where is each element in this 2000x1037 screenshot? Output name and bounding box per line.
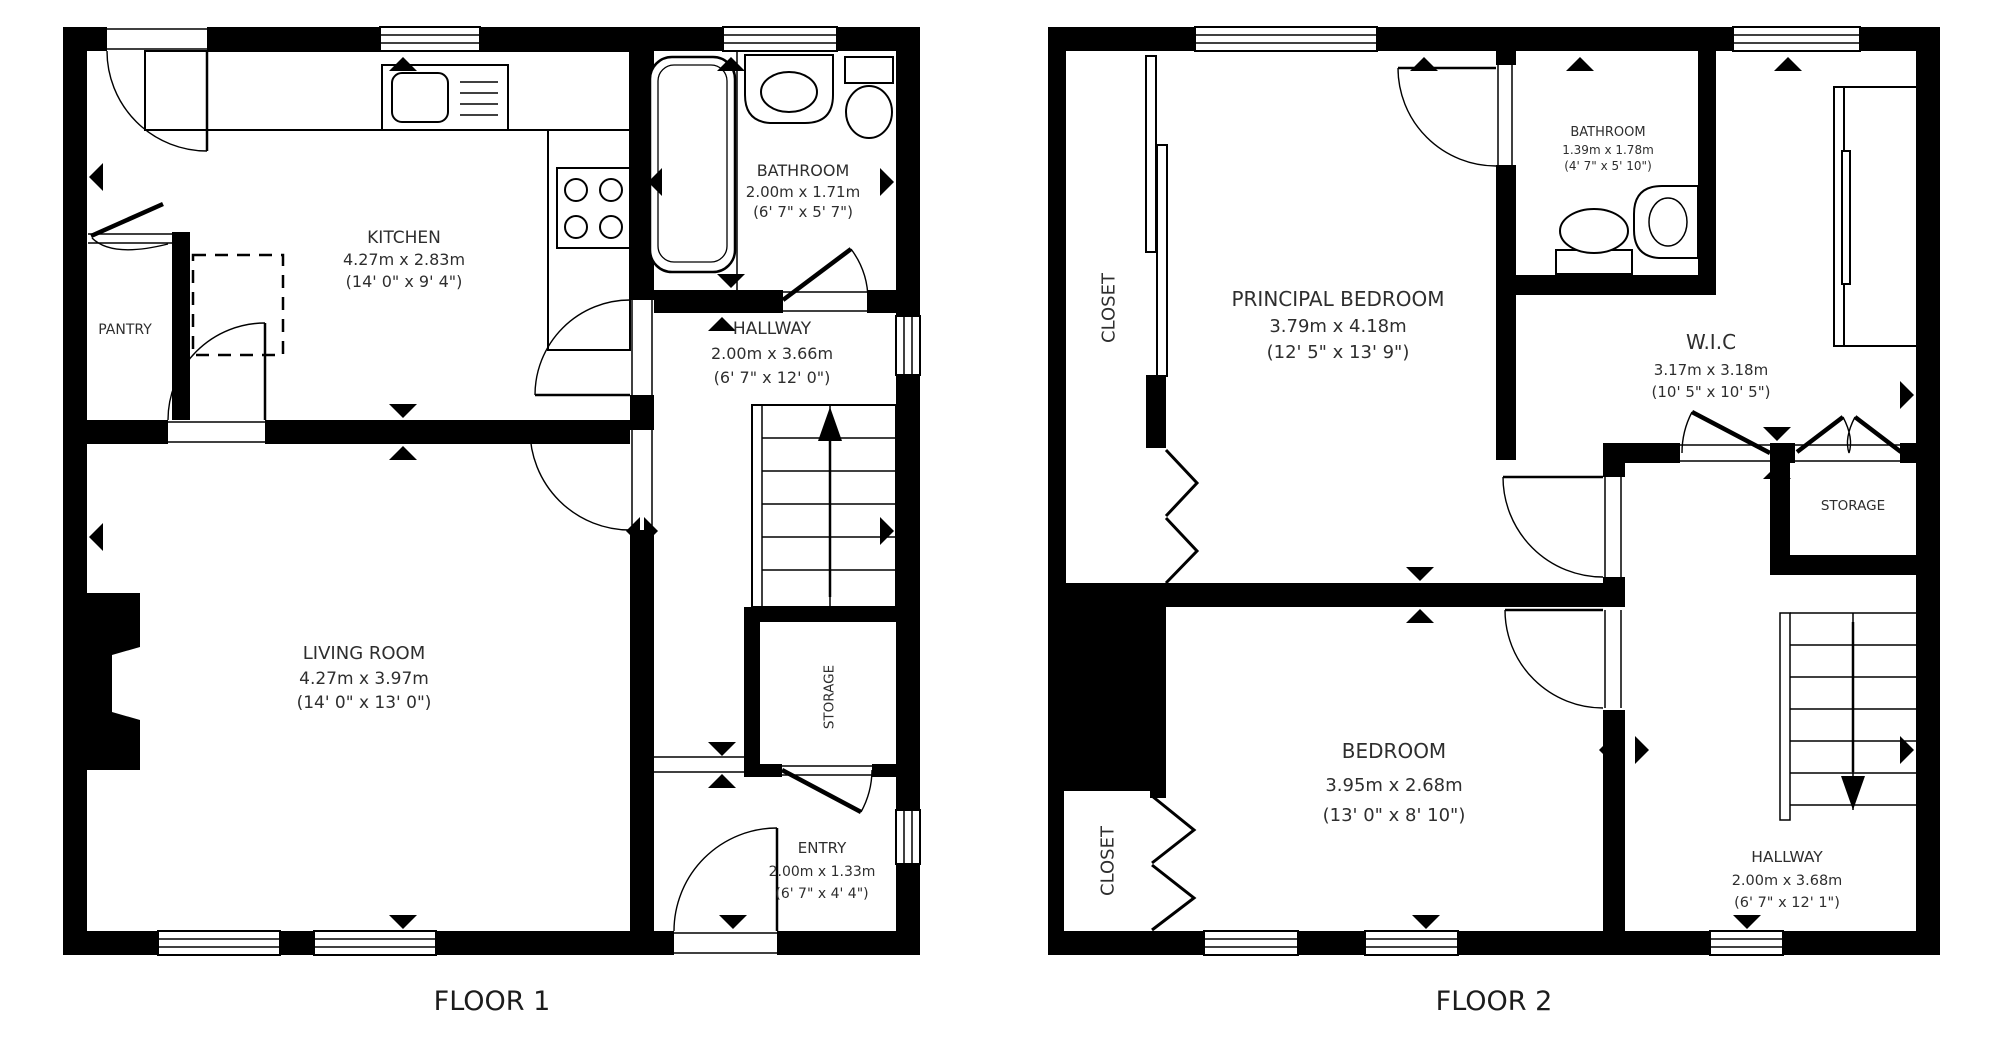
- hallway-entry-opening: [654, 757, 744, 772]
- staircase-down: [1780, 613, 1916, 820]
- bathroom-sink: [745, 55, 833, 123]
- floor2-plan: CLOSET PRINCIPAL BEDROOM 3.79m x 4.18m (…: [1048, 27, 1940, 1017]
- room-label-kitchen: KITCHEN: [367, 228, 441, 248]
- storage-door: [782, 764, 872, 812]
- room-dim-hallway-f1-imperial: (6' 7" x 12' 0"): [714, 368, 831, 387]
- room-label-hallway-f2: HALLWAY: [1751, 848, 1823, 866]
- bifold-closet-door: [1152, 796, 1194, 930]
- room-label-bathroom-f1: BATHROOM: [757, 161, 850, 180]
- window: [1195, 27, 1377, 51]
- room-dim-kitchen-metric: 4.27m x 2.83m: [343, 250, 465, 269]
- window: [1733, 27, 1860, 51]
- room-label-wic: W.I.C: [1686, 330, 1736, 354]
- wic-door: [1680, 412, 1770, 463]
- room-dim-hallway-f2-imperial: (6' 7" x 12' 1"): [1734, 895, 1840, 911]
- toilet: [1556, 209, 1632, 274]
- room-dim-hallway-f2-metric: 2.00m x 3.68m: [1732, 873, 1843, 889]
- window: [723, 27, 837, 51]
- room-label-storage-f2: STORAGE: [1821, 498, 1885, 514]
- fireplace: [87, 593, 140, 770]
- floor2-labels: CLOSET PRINCIPAL BEDROOM 3.79m x 4.18m (…: [1097, 125, 1885, 1017]
- room-dim-bedroom-metric: 3.95m x 2.68m: [1325, 775, 1462, 796]
- room-dim-entry-imperial: (6' 7" x 4' 4"): [775, 886, 868, 902]
- floor2-title: FLOOR 2: [1436, 986, 1553, 1017]
- room-label-bedroom: BEDROOM: [1342, 739, 1446, 763]
- room-dim-hallway-f1-metric: 2.00m x 3.66m: [711, 344, 833, 363]
- room-dim-principal-bedroom-imperial: (12' 5" x 13' 9"): [1267, 342, 1410, 363]
- room-dim-bedroom-imperial: (13' 0" x 8' 10"): [1323, 805, 1466, 826]
- room-dim-bathroom-f2-imperial: (4' 7" x 5' 10"): [1564, 159, 1652, 173]
- wardrobe-rail: [1834, 87, 1920, 346]
- room-label-entry: ENTRY: [798, 839, 847, 857]
- room-dim-wic-imperial: (10' 5" x 10' 5"): [1652, 383, 1771, 401]
- window: [1365, 931, 1458, 955]
- staircase-up: [752, 405, 896, 607]
- kitchen-sink: [382, 65, 508, 130]
- bifold-closet-door: [1166, 450, 1197, 583]
- room-dim-living-room-imperial: (14' 0" x 13' 0"): [297, 693, 432, 713]
- room-label-hallway-f1: HALLWAY: [733, 319, 812, 339]
- window: [380, 27, 480, 51]
- bedroom-door: [1505, 607, 1625, 710]
- room-label-closet-lower: CLOSET: [1097, 825, 1118, 896]
- floor1-labels: KITCHEN 4.27m x 2.83m (14' 0" x 9' 4") P…: [98, 161, 875, 1017]
- window: [1204, 931, 1298, 955]
- bathroom-f2-door: [1398, 65, 1516, 166]
- room-dim-bathroom-f1-metric: 2.00m x 1.71m: [746, 183, 860, 201]
- room-dim-wic-metric: 3.17m x 3.18m: [1654, 361, 1768, 379]
- living-hallway-door: [530, 430, 654, 530]
- kitchen-hallway-door: [535, 300, 654, 395]
- room-label-principal-bedroom: PRINCIPAL BEDROOM: [1231, 287, 1444, 311]
- dishwasher-appliance: [193, 255, 283, 355]
- window: [314, 931, 436, 955]
- room-label-pantry: PANTRY: [98, 322, 152, 338]
- front-entry-door: [674, 828, 777, 955]
- floor2-closet-doors: [1064, 56, 1197, 931]
- bathroom-door: [783, 249, 868, 313]
- window: [1710, 931, 1783, 955]
- room-dim-living-room-metric: 4.27m x 3.97m: [299, 669, 429, 689]
- toilet: [845, 57, 893, 138]
- room-dim-bathroom-f2-metric: 1.39m x 1.78m: [1562, 143, 1654, 157]
- room-dim-kitchen-imperial: (14' 0" x 9' 4"): [346, 272, 463, 291]
- room-label-living-room: LIVING ROOM: [303, 643, 425, 664]
- window: [158, 931, 280, 955]
- floor1-plan: KITCHEN 4.27m x 2.83m (14' 0" x 9' 4") P…: [63, 27, 920, 1017]
- room-label-bathroom-f2: BATHROOM: [1570, 125, 1645, 140]
- room-dim-bathroom-f1-imperial: (6' 7" x 5' 7"): [753, 203, 853, 221]
- bathroom-sink: [1634, 186, 1698, 258]
- room-dim-entry-metric: 2.00m x 1.33m: [769, 864, 876, 880]
- storage-f2-double-doors: [1795, 417, 1901, 463]
- room-dim-principal-bedroom-metric: 3.79m x 4.18m: [1269, 316, 1406, 337]
- room-label-storage-f1: STORAGE: [822, 665, 838, 729]
- stove: [557, 168, 630, 248]
- principal-bedroom-door: [1503, 477, 1625, 577]
- floor2-windows: [1195, 27, 1860, 955]
- pantry-door: [88, 204, 172, 250]
- window: [896, 810, 920, 864]
- side-entrance-door: [107, 27, 207, 151]
- floor-plan-drawing: KITCHEN 4.27m x 2.83m (14' 0" x 9' 4") P…: [0, 0, 2000, 1037]
- floor1-doors: [88, 27, 872, 955]
- floor1-title: FLOOR 1: [434, 986, 551, 1017]
- bathtub: [650, 51, 737, 290]
- sliding-closet-doors: [1146, 56, 1167, 376]
- window: [896, 316, 920, 375]
- room-label-closet-upper: CLOSET: [1098, 272, 1119, 343]
- floor-plan-canvas: KITCHEN 4.27m x 2.83m (14' 0" x 9' 4") P…: [0, 0, 2000, 1037]
